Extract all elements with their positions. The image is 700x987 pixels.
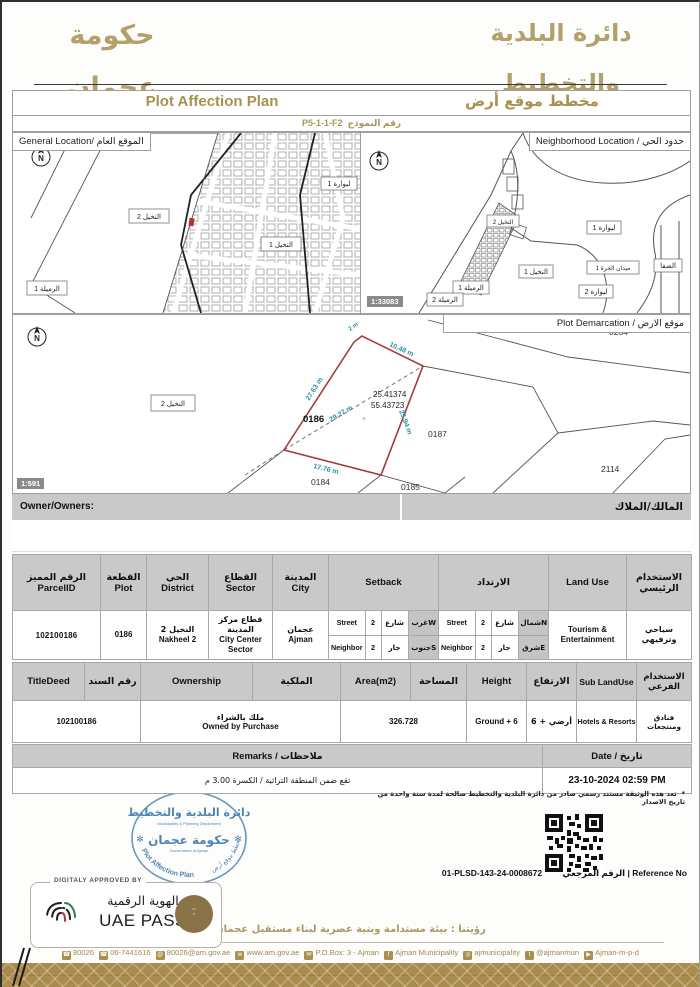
label-nakheel1: النخيل 1 bbox=[524, 269, 548, 276]
header-district: الحيDistrict bbox=[147, 555, 209, 611]
contact-item: ☎06-7441616 bbox=[99, 948, 151, 960]
header-height: Height bbox=[467, 663, 527, 701]
header-parcelid: الرقم المميزParcelID bbox=[13, 555, 101, 611]
irtidad-grid: Street 2 شارع شمالN Neighbor 2 جار شرقE bbox=[439, 611, 549, 660]
email-icon: @ bbox=[156, 951, 165, 960]
value-titledeed: 102100186 bbox=[13, 701, 141, 743]
plot-demarcation-drawing: 10.48 m 27.63 m 25.94 m 17.76 m 29.27 m … bbox=[13, 315, 690, 493]
contact-item: ✉P.O.Box: 3 - Ajman bbox=[304, 948, 379, 960]
facebook-icon: f bbox=[384, 951, 393, 960]
stamp-gov-ar: حكومة عجمان bbox=[148, 833, 230, 848]
fax-icon: ☎ bbox=[99, 951, 108, 960]
qr-code bbox=[545, 814, 603, 872]
youtube-icon: ▶ bbox=[584, 951, 593, 960]
reference-number-row: Reference No | الرقم المرجعي 01-PLSD-143… bbox=[442, 868, 687, 879]
neighborhood-location-drawing: النخيل 2 النخيل 1 ليوارة 1 ليوارة 2 ميدا… bbox=[361, 133, 690, 313]
setback-neighbor-label: Neighbor bbox=[329, 635, 365, 659]
svg-text:N: N bbox=[34, 334, 40, 343]
irtidad-neighbor-direction: شرقE bbox=[518, 635, 549, 659]
header-setback: Setback bbox=[329, 555, 439, 611]
plot-longitude: 55.43723 bbox=[371, 401, 405, 410]
value-ownership: ملك بالشراءOwned by Purchase bbox=[141, 701, 341, 743]
compass-icon: N bbox=[370, 150, 388, 170]
setback-neighbor-direction: جنوبS bbox=[408, 635, 439, 659]
maps-scale: 1:33083 bbox=[367, 296, 403, 307]
header-irtidad: الارتداد bbox=[439, 555, 549, 611]
header-area-ar: المساحة bbox=[411, 663, 467, 701]
stamp-dept-ar: دائرة البلدية والتخطيط bbox=[128, 806, 251, 819]
dimension-bottom: 17.76 m bbox=[313, 463, 340, 476]
header-sublanduse-ar: الاستخدام الفرعي bbox=[637, 663, 692, 701]
header-date: Date / تاريخ bbox=[543, 745, 692, 768]
owner-label-en: Owner/Owners: bbox=[12, 494, 400, 520]
irtidad-street-value: 2 bbox=[475, 611, 491, 635]
setback-street-direction: غربW bbox=[408, 611, 439, 635]
irtidad-neighbor-label-ar: جار bbox=[491, 635, 518, 659]
dimension-diagonal: 29.27 m bbox=[328, 404, 354, 423]
page-title-ar: مخطط موقع أرض bbox=[422, 92, 642, 110]
neighbor-plot-0187: 0187 bbox=[428, 429, 447, 439]
phone-icon: ☎ bbox=[62, 951, 71, 960]
label-rumaila1: الرميلة 1 bbox=[458, 285, 484, 292]
value-sublanduse-ar: فنادق ومنتجعات bbox=[637, 701, 692, 743]
contact-item-label: 80026@am.gov.ae bbox=[167, 948, 231, 957]
header-remarks: Remarks / ملاحظات bbox=[13, 745, 543, 768]
label-liwara1: ليوارة 1 bbox=[328, 181, 351, 188]
general-location-drawing: النخيل 2 النخيل 1 ليوارة 1 الرميلة 1 N bbox=[13, 133, 360, 313]
header-sublanduse: Sub LandUse bbox=[577, 663, 637, 701]
neighborhood-location-title: Neighborhood Location / حدود الحي bbox=[529, 132, 691, 151]
plot-details-table: الرقم المميزParcelID القطعةPlot الحيDist… bbox=[12, 554, 692, 660]
label-nakheel2: النخيل 2 bbox=[493, 219, 514, 226]
irtidad-neighbor-value: 2 bbox=[475, 635, 491, 659]
owner-label-ar: المالك/الملاك bbox=[402, 494, 691, 520]
header-height-ar: الارتفاع bbox=[527, 663, 577, 701]
contact-item-label: P.O.Box: 3 - Ajman bbox=[315, 948, 379, 957]
value-city: عجمانAjman bbox=[273, 611, 329, 660]
contact-item-label: 06-7441616 bbox=[110, 948, 151, 957]
pobox-icon: ✉ bbox=[304, 951, 313, 960]
header-divider bbox=[34, 84, 667, 85]
digitally-approved-caption: DIGITALY APPROVED BY bbox=[50, 877, 146, 884]
contact-item: fAjman Municipality bbox=[384, 948, 458, 960]
value-height-en: Ground + 6 bbox=[467, 701, 527, 743]
setback-street-value: 2 bbox=[365, 611, 381, 635]
contact-item: ▶Ajman-m-p-d bbox=[584, 948, 639, 960]
contact-bar: ☎80026☎06-7441616@80026@am.gov.aewwww.am… bbox=[2, 948, 699, 960]
value-area: 326.728 bbox=[341, 701, 467, 743]
plot-demarcation-title: Plot Demarcation / موقع الارض bbox=[443, 314, 691, 333]
contact-item-label: Ajman Municipality bbox=[395, 948, 458, 957]
setback-neighbor-value: 2 bbox=[365, 635, 381, 659]
demarcation-scale: 1:591 bbox=[17, 478, 44, 489]
contact-item: wwww.am.gov.ae bbox=[235, 948, 299, 960]
pen-mark bbox=[10, 946, 38, 987]
page-title-en: Plot Affection Plan bbox=[102, 93, 322, 110]
setback-neighbor-label-ar: جار bbox=[381, 635, 408, 659]
plot-latitude: 25.41374 bbox=[373, 390, 407, 399]
header-area: Area(m2) bbox=[341, 663, 411, 701]
stamp-dept-en: Municipality & Planning Department bbox=[157, 821, 221, 826]
svg-text:+: + bbox=[362, 416, 366, 423]
official-stamp: دائرة البلدية والتخطيط Municipality & Pl… bbox=[110, 794, 268, 890]
setback-street-label-ar: شارع bbox=[381, 611, 408, 635]
web-icon: w bbox=[235, 951, 244, 960]
contact-item: ☎80026 bbox=[62, 948, 94, 960]
header-landuse: Land Use bbox=[549, 555, 627, 611]
header-sanad: رقم السند bbox=[85, 663, 141, 701]
instagram-icon: ◎ bbox=[463, 951, 472, 960]
compass-icon: N bbox=[28, 326, 46, 346]
document-page: حكومة عجمان Government Of Ajman دائرة ال… bbox=[0, 0, 700, 987]
header-landuse-ar: الاستخدام الرئيسي bbox=[627, 555, 692, 611]
setback-street-label: Street bbox=[329, 611, 365, 635]
value-height-ar: أرضي + 6 bbox=[527, 701, 577, 743]
twitter-icon: t bbox=[525, 951, 534, 960]
value-district: النخيل 2Nakheel 2 bbox=[147, 611, 209, 660]
contact-item-label: Ajman-m-p-d bbox=[595, 948, 639, 957]
dimension-left: 27.63 m bbox=[305, 377, 325, 402]
svg-text:N: N bbox=[38, 154, 44, 163]
form-number-label: رقم النموذج bbox=[347, 118, 401, 128]
contact-item-label: @ajmanmun bbox=[536, 948, 579, 957]
label-nakheel1: النخيل 1 bbox=[269, 242, 293, 249]
irtidad-street-label: Street bbox=[439, 611, 475, 635]
uae-pass-seal: ▪▪▪▪▪ bbox=[175, 895, 213, 933]
irtidad-street-direction: شمالN bbox=[518, 611, 549, 635]
plot-number: 0186 bbox=[303, 414, 324, 425]
svg-text:✻: ✻ bbox=[136, 834, 144, 844]
value-sublanduse-en: Hotels & Resorts bbox=[577, 701, 637, 743]
plot-demarcation-map: Plot Demarcation / موقع الارض 10.48 m 27… bbox=[12, 314, 691, 494]
label-safa: الصفا bbox=[660, 263, 676, 270]
contact-item-label: www.am.gov.ae bbox=[246, 948, 299, 957]
dimension-right: 25.94 m bbox=[397, 409, 413, 435]
form-number-row: رقم النموذج P5-1-1-F2 bbox=[12, 116, 691, 132]
value-landuse: Tourism & Entertainment bbox=[549, 611, 627, 660]
remarks-table: Remarks / ملاحظات Date / تاريخ تقع ضمن ا… bbox=[12, 744, 692, 794]
dimension-corner: 2 m bbox=[348, 322, 360, 333]
contact-item-label: ajmunicipality bbox=[474, 948, 520, 957]
reference-label: Reference No | الرقم المرجعي bbox=[562, 868, 687, 878]
header-titledeed: TitleDeed bbox=[13, 663, 85, 701]
stamp-gov-en: Government of Ajman bbox=[170, 848, 209, 853]
fingerprint-icon bbox=[41, 895, 81, 935]
uae-pass-badge: الهوية الرقمية UAE PASS ▪▪▪▪▪ bbox=[30, 882, 222, 948]
label-rumaila1: الرميلة 1 bbox=[34, 286, 60, 293]
form-number-value: P5-1-1-F2 bbox=[302, 118, 343, 128]
neighborhood-location-map: Neighborhood Location / حدود الحي bbox=[360, 132, 691, 314]
label-maydan-alhurra: ميدان الحرة 1 bbox=[596, 265, 631, 272]
contact-item: t@ajmanmun bbox=[525, 948, 579, 960]
irtidad-neighbor-label: Neighbor bbox=[439, 635, 475, 659]
label-nakheel2-box: النخيل 2 bbox=[161, 401, 185, 408]
header-milkia: الملكية bbox=[253, 663, 341, 701]
header-sector: القطاعSector bbox=[209, 555, 273, 611]
label-nakheel2: النخيل 2 bbox=[137, 214, 161, 221]
general-location-map: General Location/ الموقع العام bbox=[12, 132, 361, 314]
header-city: المدينةCity bbox=[273, 555, 329, 611]
value-plot: 0186 bbox=[101, 611, 147, 660]
irtidad-street-label-ar: شارع bbox=[491, 611, 518, 635]
svg-text:N: N bbox=[376, 158, 382, 167]
value-landuse-ar: سياحي وترفيهي bbox=[627, 611, 692, 660]
header-ownership: Ownership bbox=[141, 663, 253, 701]
reference-value: 01-PLSD-143-24-0008672 bbox=[442, 868, 542, 878]
general-location-title: General Location/ الموقع العام bbox=[12, 132, 151, 151]
label-rumaila2: الرميلة 2 bbox=[432, 297, 458, 304]
validity-footnote: * تعد هذه الوثيقة مستند رسمي صادر من دائ… bbox=[375, 790, 685, 806]
header-plot: القطعةPlot bbox=[101, 555, 147, 611]
neighbor-plot-2114: 2114 bbox=[601, 464, 620, 474]
decorative-band bbox=[2, 963, 699, 987]
setback-grid: Street 2 شارع غربW Neighbor 2 جار جنوبS bbox=[329, 611, 439, 660]
value-parcelid: 102100186 bbox=[13, 611, 101, 660]
contact-item: ◎ajmunicipality bbox=[463, 948, 520, 960]
contact-item-label: 80026 bbox=[73, 948, 94, 957]
ownership-table: TitleDeed رقم السند Ownership الملكية Ar… bbox=[12, 662, 692, 743]
label-liwara2: ليوارة 2 bbox=[585, 289, 608, 296]
contact-item: @80026@am.gov.ae bbox=[156, 948, 231, 960]
neighbor-plot-0185: 0185 bbox=[401, 482, 420, 492]
owner-name-area bbox=[12, 520, 691, 552]
neighbor-plot-0184: 0184 bbox=[311, 477, 330, 487]
label-liwara1: ليوارة 1 bbox=[593, 225, 616, 232]
value-sector: قطاع مركز المدينةCity Center Sector bbox=[209, 611, 273, 660]
